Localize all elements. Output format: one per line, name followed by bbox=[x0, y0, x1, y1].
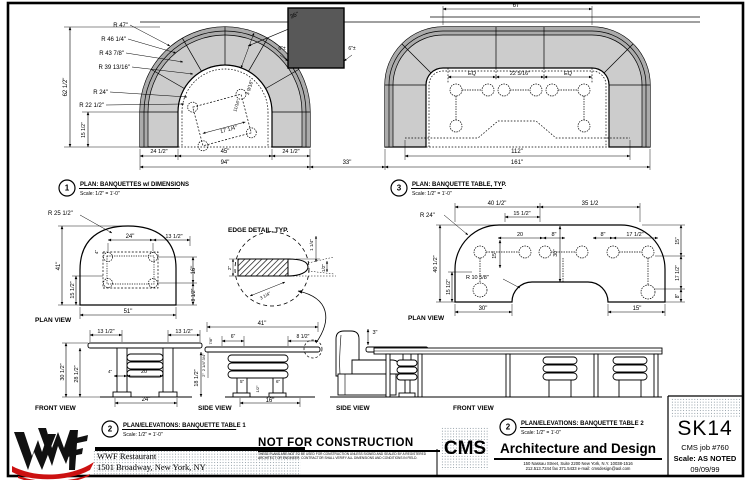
callout-title: PLAN/ELEVATIONS: BANQUETTE TABLE 1 bbox=[123, 423, 246, 429]
dimension-label: R 10 5/8" bbox=[466, 275, 489, 281]
dimension-label: 94" bbox=[221, 160, 230, 166]
callout-scale: Scale: 1/2" = 1'-0" bbox=[521, 430, 561, 436]
dimension-label: EQ bbox=[564, 71, 573, 77]
dimension-label: R 24" bbox=[420, 213, 435, 219]
firm-initials: CMS bbox=[444, 438, 486, 460]
callout-title: PLAN/ELEVATIONS: BANQUETTE TABLE 2 bbox=[521, 421, 644, 427]
firm-name: Architecture and Design bbox=[494, 441, 662, 460]
dimension-label: 6"± bbox=[278, 46, 286, 52]
dimension-label: 5" bbox=[240, 379, 245, 384]
dimension-label: 30" bbox=[479, 306, 488, 312]
view-label: SIDE VIEW bbox=[336, 405, 370, 412]
dimension-label: 2" bbox=[227, 266, 232, 271]
firm-address: 150 Nassau Street, Suite 2200 New York, … bbox=[494, 461, 662, 471]
drawing-sheet: { "title_block": { "sheet_number": "SK14… bbox=[0, 0, 750, 480]
dimension-label: 67" bbox=[513, 3, 522, 9]
dimension-label: 24" bbox=[142, 397, 151, 403]
view-label: FRONT VIEW bbox=[453, 405, 495, 412]
callout-number: 2 bbox=[108, 425, 113, 434]
dimension-label: 33" bbox=[343, 160, 352, 166]
drawing-canvas: R 47"R 46 1/4"R 43 7/8"R 39 13/16"R 24"R… bbox=[0, 0, 750, 480]
dimension-label: 30 1/2" bbox=[60, 363, 66, 380]
dimension-label: 2 1/4" bbox=[201, 360, 206, 371]
dimension-label: 13 1/2" bbox=[165, 234, 182, 240]
stamp: NOT FOR CONSTRUCTION THESE PLANS ARE NOT… bbox=[258, 437, 440, 460]
dimension-label: 15" bbox=[492, 251, 498, 259]
dimension-label: 6" bbox=[231, 334, 236, 340]
dimension-label: 17 1/2" bbox=[626, 232, 643, 238]
dimension-label: R 47" bbox=[113, 23, 128, 29]
dimension-label: 2" bbox=[201, 373, 206, 377]
dimension-label: 18 1/2" bbox=[194, 369, 200, 386]
dimension-label: EQ bbox=[468, 71, 477, 77]
sheet-date: 09/09/99 bbox=[668, 465, 742, 474]
client-block: WWF Restaurant 1501 Broadway, New York, … bbox=[97, 451, 206, 472]
dimension-label: 112" bbox=[511, 149, 523, 155]
callout-title: PLAN: BANQUETTES w/ DIMENSIONS bbox=[80, 182, 189, 188]
dimension-label: R 43 7/8" bbox=[99, 51, 124, 57]
view-label: FRONT VIEW bbox=[35, 405, 77, 412]
client-address: 1501 Broadway, New York, NY bbox=[97, 462, 206, 473]
dimension-label: 13 1/2" bbox=[97, 329, 114, 335]
dimension-label: 15" bbox=[675, 237, 681, 245]
dimension-label: 41" bbox=[258, 321, 267, 327]
dimension-label: 8" bbox=[600, 232, 605, 238]
dimension-label: 20 bbox=[517, 232, 523, 238]
dimension-label: 15" bbox=[633, 306, 642, 312]
view-label: PLAN VIEW bbox=[408, 315, 445, 322]
dimension-label: 8" bbox=[551, 232, 556, 238]
dimension-label: 16" bbox=[266, 398, 275, 404]
dimension-label: 15 1/2" bbox=[70, 281, 76, 298]
callout-number: 2 bbox=[506, 423, 511, 432]
dimension-label: 51" bbox=[124, 309, 133, 315]
dimension-label: 15 1/2" bbox=[81, 122, 87, 138]
dimension-label: 35 1/2 bbox=[582, 201, 599, 207]
dimension-label: 8 1/2" bbox=[191, 288, 197, 301]
dimension-label: 6" bbox=[276, 379, 281, 384]
callout-scale: Scale: 1/2" = 1'-0" bbox=[412, 191, 452, 197]
callout-scale: Scale: 1/2" = 1'-0" bbox=[80, 191, 120, 197]
view-label: PLAN VIEW bbox=[35, 317, 72, 324]
dimension-label: R 46 1/4" bbox=[101, 37, 126, 43]
dimension-label: 41" bbox=[56, 262, 62, 271]
view-label: SIDE VIEW bbox=[198, 405, 232, 412]
dimension-label: 8" bbox=[675, 294, 681, 299]
detail-label: EDGE DETAIL, TYP. bbox=[228, 227, 289, 234]
dimension-label: 17 1/2" bbox=[675, 265, 681, 281]
dimension-label: R 24" bbox=[93, 90, 108, 96]
dimension-label: 7/8" bbox=[208, 337, 213, 345]
dimension-label: 24" bbox=[126, 234, 135, 240]
callout-title: PLAN: BANQUETTE TABLE, TYP. bbox=[412, 182, 507, 188]
sheet-scale: Scale: AS NOTED bbox=[668, 454, 742, 463]
job-number: CMS job #760 bbox=[668, 443, 742, 452]
dimension-label: 4" bbox=[94, 250, 99, 255]
dimension-label: 1 1/4" bbox=[309, 239, 314, 251]
dimension-label: 40 1/2" bbox=[488, 201, 507, 207]
dimension-label: 4" bbox=[108, 369, 113, 374]
sheet-number-stipple bbox=[671, 398, 741, 417]
callout-scale: Scale: 1/2" = 1'-0" bbox=[123, 432, 163, 438]
dimension-label: 8 1/2" bbox=[297, 334, 310, 340]
callout-number: 3 bbox=[397, 184, 402, 193]
dimension-label: 40 1/2" bbox=[433, 255, 439, 272]
dimension-label: R 22 1/2" bbox=[79, 103, 104, 109]
stamp-fine-print: THESE PLANS ARE NOT TO BE USED FOR CONST… bbox=[258, 452, 440, 460]
callout-number: 1 bbox=[65, 184, 70, 193]
client-name: WWF Restaurant bbox=[97, 451, 206, 462]
dimension-label: 22 5/16" bbox=[510, 71, 530, 77]
dimension-label: 62 1/2" bbox=[63, 78, 69, 97]
dimension-label: 1/2" bbox=[255, 385, 260, 393]
dimension-label: 20" bbox=[141, 369, 149, 375]
dimension-label: R 39 13/16" bbox=[99, 65, 131, 71]
dimension-label: 24 1/2" bbox=[150, 149, 167, 155]
dimension-label: 161" bbox=[511, 160, 523, 166]
dimension-label: 1/2" bbox=[321, 264, 326, 272]
dimension-label: 28 1/2" bbox=[74, 365, 80, 382]
dimension-label: 45" bbox=[221, 149, 230, 155]
dimension-label: 6"± bbox=[348, 46, 356, 52]
firm-logo-box: CMS bbox=[441, 427, 489, 470]
dimension-label: R 25 1/2" bbox=[48, 211, 73, 217]
dimension-label: 15 1/2" bbox=[446, 279, 452, 295]
dimension-label: 30" bbox=[553, 249, 559, 257]
dimension-label: 16" bbox=[191, 266, 197, 275]
stamp-text: NOT FOR CONSTRUCTION bbox=[258, 437, 440, 452]
dimension-label: 13 1/2" bbox=[175, 329, 192, 335]
dimension-label: 3/4" bbox=[201, 353, 206, 361]
sheet-number: SK14 bbox=[668, 417, 742, 441]
dimension-label: 15 1/2" bbox=[513, 211, 530, 217]
dimension-label: 24 1/2" bbox=[282, 149, 299, 155]
dimension-label: 3" bbox=[372, 330, 377, 336]
